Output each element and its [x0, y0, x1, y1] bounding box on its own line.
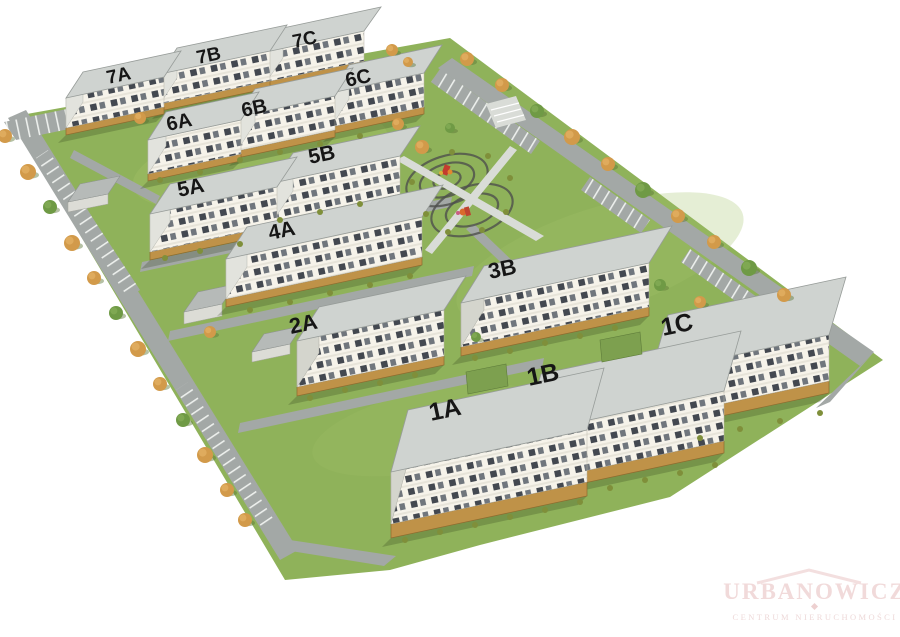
tree-highlight — [110, 307, 117, 314]
tree-highlight — [199, 449, 207, 457]
watermark: URBANOWICZ CENTRUM NIERUCHOMOŚCI — [723, 570, 900, 622]
bush-icon — [247, 307, 253, 313]
tree-highlight — [387, 45, 393, 51]
bush-icon — [237, 241, 243, 247]
tree-highlight — [416, 141, 423, 148]
bush-icon — [449, 149, 455, 155]
bush-icon — [542, 340, 548, 346]
bush-icon — [367, 282, 373, 288]
tree-highlight — [177, 414, 184, 421]
tree-highlight — [602, 158, 609, 165]
bush-icon — [485, 153, 491, 159]
bush-icon — [307, 395, 313, 401]
bush-icon — [472, 355, 478, 361]
bush-icon — [642, 477, 648, 483]
bush-icon — [162, 255, 168, 261]
watermark-subtitle: CENTRUM NIERUCHOMOŚCI — [733, 612, 898, 622]
site-plan-rendering: 7A 7B 7C 6A 6B 6C 5A 5B 4A 3B 2A 1A 1B 1… — [0, 0, 900, 637]
bush-icon — [607, 485, 613, 491]
site-plan-svg: 7A 7B 7C 6A 6B 6C 5A 5B 4A 3B 2A 1A 1B 1… — [0, 0, 900, 637]
bush-icon — [712, 462, 718, 468]
tree-highlight — [461, 53, 468, 60]
bush-icon — [197, 248, 203, 254]
tree-highlight — [496, 79, 503, 86]
tree-highlight — [132, 343, 140, 351]
bush-icon — [423, 211, 429, 217]
tree-highlight — [472, 333, 477, 338]
tree-highlight — [66, 237, 74, 245]
tree-highlight — [88, 272, 95, 279]
tree-highlight — [205, 327, 211, 333]
bush-icon — [472, 522, 478, 528]
bush-icon — [437, 529, 443, 535]
bush-icon — [407, 273, 413, 279]
bush-icon — [542, 507, 548, 513]
bush-icon — [357, 201, 363, 207]
tree-highlight — [566, 131, 574, 139]
tree-highlight — [404, 58, 409, 63]
bush-icon — [577, 333, 583, 339]
tree-highlight — [44, 201, 51, 208]
tree-highlight — [531, 105, 538, 112]
bush-icon — [357, 133, 363, 139]
bush-icon — [777, 418, 783, 424]
bush-icon — [412, 372, 418, 378]
bush-icon — [507, 175, 513, 181]
bush-icon — [445, 229, 451, 235]
bush-icon — [507, 514, 513, 520]
bush-icon — [287, 299, 293, 305]
bush-icon — [277, 149, 283, 155]
bush-icon — [737, 426, 743, 432]
tree-highlight — [743, 262, 751, 270]
bush-icon — [409, 179, 415, 185]
bush-icon — [817, 410, 823, 416]
bush-icon — [479, 227, 485, 233]
tree-highlight — [393, 119, 399, 125]
tree-highlight — [221, 484, 228, 491]
bush-icon — [503, 209, 509, 215]
tree-highlight — [135, 113, 141, 119]
tree-highlight — [446, 124, 451, 129]
bush-icon — [677, 470, 683, 476]
tree-highlight — [708, 236, 715, 243]
bush-icon — [327, 290, 333, 296]
watermark-diamond-icon — [811, 603, 818, 610]
tree-highlight — [22, 166, 30, 174]
tree-highlight — [778, 289, 785, 296]
tree-highlight — [672, 210, 679, 217]
bush-icon — [317, 209, 323, 215]
bush-icon — [402, 537, 408, 543]
tree-highlight — [655, 280, 661, 286]
bush-icon — [237, 157, 243, 163]
tree-highlight — [695, 297, 701, 303]
bush-icon — [342, 387, 348, 393]
watermark-name: URBANOWICZ — [723, 579, 900, 604]
bush-icon — [577, 499, 583, 505]
tree-highlight — [154, 378, 161, 385]
bush-icon — [507, 348, 513, 354]
bush-icon — [612, 325, 618, 331]
tree-highlight — [637, 184, 645, 192]
tree-highlight — [239, 514, 246, 521]
bush-icon — [157, 177, 163, 183]
bush-icon — [377, 380, 383, 386]
bush-icon — [697, 435, 703, 441]
